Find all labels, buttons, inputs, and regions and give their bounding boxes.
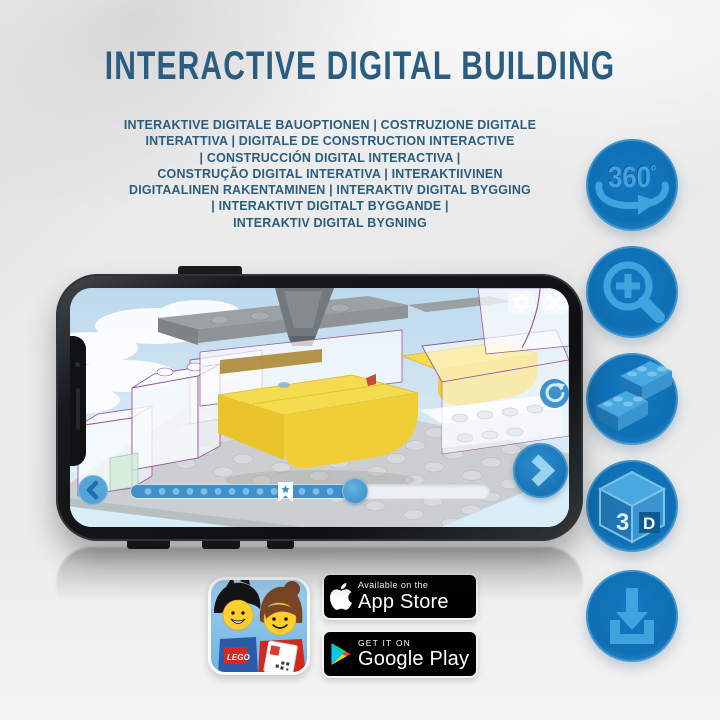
subtitle-line: | CONSTRUCCIÓN DIGITAL INTERACTIVA | (13, 150, 647, 166)
svg-text:D: D (643, 514, 655, 533)
google-play-name: Google Play (358, 649, 469, 669)
subtitle-line: CONSTRUÇÃO DIGITAL INTERATIVA | INTERAKT… (13, 166, 647, 182)
close-button[interactable] (541, 291, 568, 314)
progress-step-dots (131, 485, 360, 498)
settings-button[interactable] (508, 291, 535, 314)
360-arrow-icon (586, 139, 678, 231)
3d-cube-icon: 3 D (586, 460, 678, 552)
progress-handle[interactable] (342, 478, 368, 504)
reset-rotation-button[interactable] (540, 379, 569, 408)
previous-step-button[interactable] (78, 475, 108, 505)
back-chevron-icon (78, 475, 108, 505)
page-title: INTERACTIVE DIGITAL BUILDING (90, 44, 630, 89)
multilingual-subtitle: INTERAKTIVE DIGITALE BAUOPTIONEN | COSTR… (0, 117, 660, 231)
subtitle-line: | INTERAKTIVT DIGITALT BYGGANDE | (13, 198, 647, 214)
feature-zoom (586, 246, 678, 338)
gear-icon (508, 291, 535, 314)
feature-360-rotation: 360º (586, 139, 678, 231)
feature-3d-view: 3 D (586, 460, 678, 552)
notch (70, 336, 86, 466)
speaker-icon (76, 388, 80, 430)
feature-download (586, 570, 678, 662)
phone-screen (70, 288, 569, 527)
subtitle-line: INTERAKTIVE DIGITALE BAUOPTIONEN | COSTR… (13, 117, 647, 133)
google-play-tagline: GET IT ON (358, 639, 469, 648)
bookmark-star-marker[interactable] (278, 482, 293, 502)
progress-fill (131, 485, 360, 498)
camera-icon (75, 362, 80, 367)
next-step-button[interactable] (513, 443, 568, 498)
progress-track[interactable] (130, 484, 490, 499)
bookmark-star-icon (278, 482, 293, 502)
feature-bricks (586, 353, 678, 445)
svg-text:LEGO: LEGO (227, 653, 250, 662)
page: INTERACTIVE DIGITAL BUILDING INTERAKTIVE… (0, 0, 720, 720)
subtitle-line: INTERAKTIV DIGITAL BYGNING (13, 215, 647, 231)
zoom-icon (586, 246, 678, 338)
rotate-icon (540, 379, 569, 408)
brick-icon (586, 353, 678, 445)
next-chevron-icon (513, 443, 568, 498)
phone (56, 274, 583, 541)
svg-text:3: 3 (616, 509, 629, 536)
close-icon (541, 291, 568, 314)
phone-reflection (56, 547, 583, 619)
download-icon (586, 570, 678, 662)
google-play-icon (324, 641, 358, 667)
subtitle-line: DIGITAALINEN RAKENTAMINEN | INTERAKTIV D… (13, 182, 647, 198)
subtitle-line: INTERATTIVA | DIGITALE DE CONSTRUCTION I… (13, 133, 647, 149)
google-play-badge[interactable]: GET IT ON Google Play (322, 630, 478, 678)
